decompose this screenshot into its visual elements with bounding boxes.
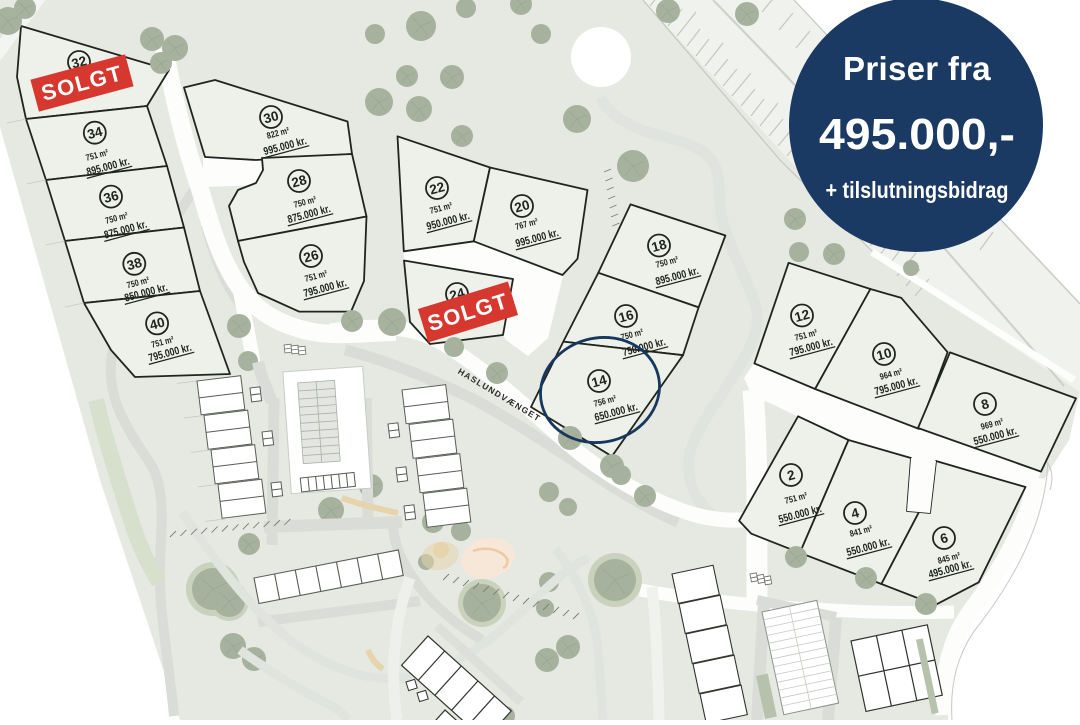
svg-text:495.000,-: 495.000,- [819, 110, 1015, 159]
svg-text:+ tilslutningsbidrag: + tilslutningsbidrag [826, 177, 1009, 203]
svg-text:Priser fra: Priser fra [843, 50, 991, 87]
